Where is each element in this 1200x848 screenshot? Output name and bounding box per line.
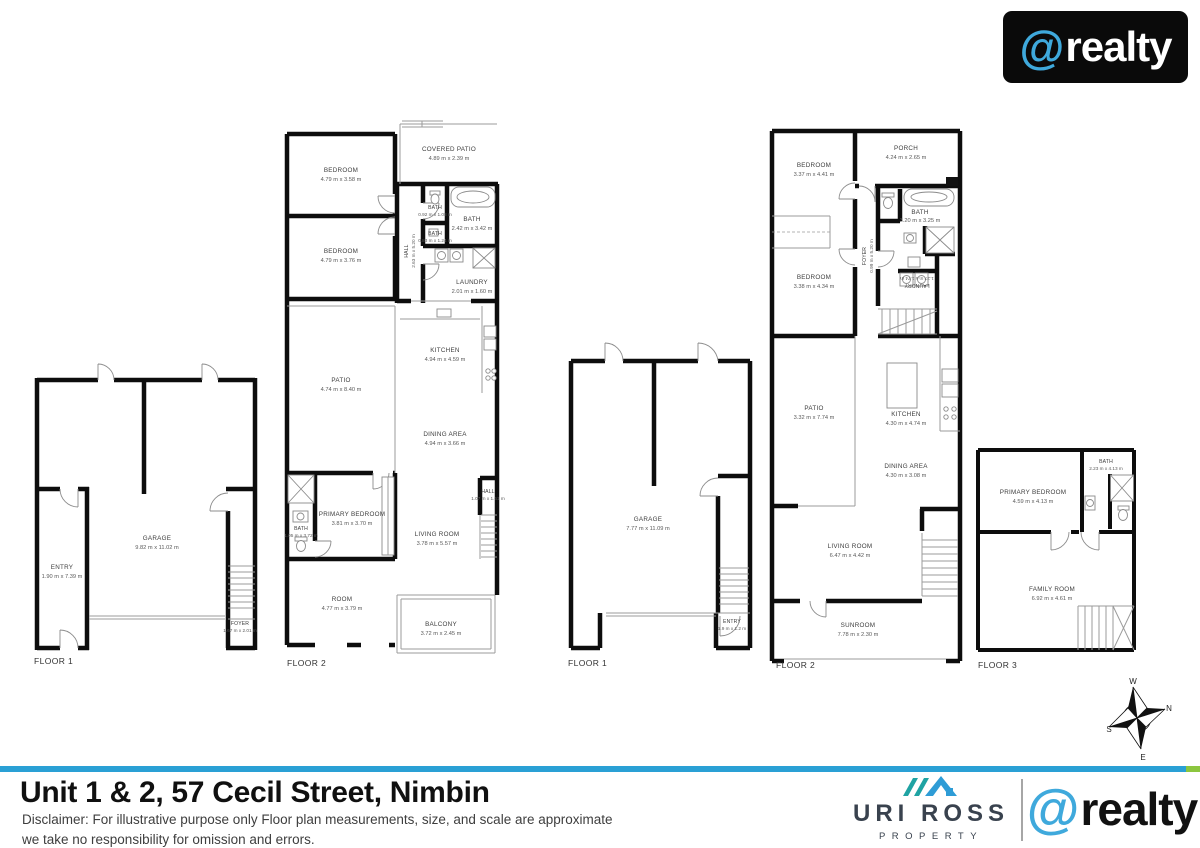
floor-label-u2f2: FLOOR 2	[776, 660, 815, 670]
room-name: DINING AREA	[884, 463, 928, 470]
room-name: FOYER	[862, 247, 868, 265]
room-dims: 7.78 m x 2.30 m	[838, 632, 879, 638]
room-label-bath-main: BATH 2.42 m x 3.42 m	[452, 216, 493, 232]
room-label-patio: PATIO 4.74 m x 8.40 m	[321, 377, 362, 393]
room-dims: 3.32 m x 7.74 m	[794, 415, 835, 421]
room-label-kitchen: KITCHEN 4.94 m x 4.59 m	[425, 347, 466, 363]
agency-name: URI ROSS	[848, 800, 1014, 828]
room-dims: 1.07 m x 1.61 m	[471, 496, 505, 501]
room-dims: 3.81 m x 3.70 m	[332, 521, 373, 527]
room-dims: 4.30 m x 4.74 m	[886, 421, 927, 427]
room-dims: 2.42 m x 3.42 m	[452, 226, 493, 232]
room-dims: 0.99 m x 5.20 m	[869, 239, 874, 273]
room-name: BATH	[1099, 459, 1113, 465]
compass-rose: W N E S	[1106, 678, 1170, 764]
room-name: LIVING ROOM	[828, 543, 873, 550]
room-name: FAMILY ROOM	[1029, 586, 1075, 593]
room-dims: 4.77 m x 3.79 m	[322, 606, 363, 612]
room-name: BEDROOM	[797, 162, 831, 169]
unit2-floor3-plan: BATH 2.23 m x 4.13 m PRIMARY BEDROOM 4.5…	[975, 444, 1140, 662]
room-dims: 3.78 m x 5.57 m	[417, 541, 458, 547]
room-name: FOYER	[231, 621, 249, 627]
room-dims: 6.92 m x 4.61 m	[1032, 596, 1073, 602]
room-label-living: LIVING ROOM 3.78 m x 5.57 m	[415, 531, 460, 547]
room-dims: 2.63 m x 5.20 m	[411, 234, 416, 268]
room-name: PATIO	[804, 405, 823, 412]
walls	[287, 134, 498, 645]
footer-accent-bar-tip	[1186, 766, 1200, 772]
room-name: LIVING ROOM	[415, 531, 460, 538]
room-name: ENTRY	[51, 564, 74, 571]
room-dims: 4.74 m x 8.40 m	[321, 387, 362, 393]
room-name: BATH	[294, 526, 308, 532]
room-name: KITCHEN	[430, 347, 460, 354]
room-dims: 4.94 m x 3.66 m	[425, 441, 466, 447]
unit1-floor2-plan: BEDROOM 4.79 m x 3.58 m BEDROOM 4.79 m x…	[285, 121, 500, 661]
room-label-sunroom: SUNROOM 7.78 m x 2.30 m	[838, 622, 879, 638]
realty-at-glyph: @	[1020, 20, 1065, 74]
room-label-kitchen: KITCHEN 4.30 m x 4.74 m	[886, 411, 927, 427]
room-label-hall: HALL 2.63 m x 5.20 m	[404, 234, 416, 268]
room-name: BATH	[911, 209, 929, 216]
room-label-bedroom1: BEDROOM 3.37 m x 4.41 m	[794, 162, 835, 178]
room-label-patio: PATIO 3.32 m x 7.74 m	[794, 405, 835, 421]
room-label-bath: BATH 3.20 m x 3.25 m	[900, 209, 941, 224]
agency-roof-icon	[901, 772, 961, 798]
room-name: KITCHEN	[891, 411, 921, 418]
room-label-garage: GARAGE 9.82 m x 11.02 m	[135, 535, 179, 551]
realty-wordmark: realty	[1065, 23, 1171, 71]
room-dims: 4.24 m x 2.65 m	[886, 155, 927, 161]
floor-label-u2f1: FLOOR 1	[568, 658, 607, 668]
room-dims: 4.30 m x 3.08 m	[886, 473, 927, 479]
fixtures	[288, 187, 496, 555]
room-label-porch: PORCH 4.24 m x 2.65 m	[886, 145, 927, 161]
compass-west: W	[1129, 677, 1137, 686]
floor-label-u1f2: FLOOR 2	[287, 658, 326, 668]
room-name: PATIO	[331, 377, 350, 384]
room-dims: 4.79 m x 3.58 m	[321, 177, 362, 183]
stairs	[1078, 606, 1134, 650]
room-dims: 4.89 m x 2.39 m	[429, 156, 470, 162]
room-label-hall-small: HALL 1.07 m x 1.61 m	[471, 489, 505, 501]
room-label-dining: DINING AREA 4.30 m x 3.08 m	[884, 463, 928, 479]
room-label-garage: GARAGE 7.77 m x 11.09 m	[626, 516, 670, 532]
door-swings	[1051, 532, 1099, 550]
realty-logo-header: @ realty	[1003, 11, 1188, 83]
room-label-covered-patio: COVERED PATIO 4.89 m x 2.39 m	[422, 146, 476, 162]
room-dims: 2.23 m x 4.13 m	[1089, 466, 1123, 471]
garage-door-line	[606, 613, 750, 616]
room-dims: 0.83 m x 1.24 m	[418, 238, 452, 243]
room-name: PRIMARY BEDROOM	[1000, 489, 1067, 496]
room-dims: 1.9 m x 1.2 m	[718, 626, 746, 631]
stairs	[719, 568, 749, 604]
unit2-floor2-plan: BEDROOM 3.37 m x 4.41 m PORCH 4.24 m x 2…	[770, 121, 965, 666]
thin-lines	[772, 216, 960, 659]
room-label-dining: DINING AREA 4.94 m x 3.66 m	[423, 431, 467, 447]
room-label-family-room: FAMILY ROOM 6.92 m x 4.61 m	[1029, 586, 1075, 602]
room-label-primary-bedroom: PRIMARY BEDROOM 3.81 m x 3.70 m	[319, 511, 386, 527]
compass-north: N	[1166, 704, 1172, 713]
room-label-bath: BATH 2.23 m x 4.13 m	[1089, 459, 1123, 471]
room-dims: 2.01 m x 1.60 m	[452, 289, 493, 295]
room-name: DINING AREA	[423, 431, 467, 438]
floor-label-u1f1: FLOOR 1	[34, 656, 73, 666]
room-dims: 6.47 m x 4.42 m	[830, 553, 871, 559]
room-name: SUNROOM	[841, 622, 876, 629]
stairs-upper	[878, 309, 937, 334]
floorplan-page: @ realty GARAGE 9.82 m x 11.02 m ENTRY	[0, 0, 1200, 848]
room-dims: 4.59 m x 4.13 m	[1013, 499, 1054, 505]
compass-south: S	[1106, 725, 1111, 734]
room-name: LAUNDRY	[904, 282, 930, 288]
walls	[571, 361, 750, 648]
agency-subtitle: PROPERTY	[848, 831, 1014, 842]
room-name: PORCH	[894, 145, 918, 152]
stairs	[228, 566, 255, 608]
room-name: HALL	[404, 244, 410, 257]
room-label-primary-bedroom: PRIMARY BEDROOM 4.59 m x 4.13 m	[1000, 489, 1067, 505]
agency-logo: URI ROSS PROPERTY	[848, 772, 1014, 842]
room-dims: 0.92 m x 1.08 m	[418, 212, 452, 217]
room-label-bedroom1: BEDROOM 4.79 m x 3.58 m	[321, 167, 362, 183]
room-label-foyer: FOYER 0.99 m x 5.20 m	[862, 239, 874, 273]
room-label-bedroom2: BEDROOM 3.38 m x 4.34 m	[794, 274, 835, 290]
page-title: Unit 1 & 2, 57 Cecil Street, Nimbin	[20, 776, 490, 810]
realty-at-glyph: @	[1027, 778, 1080, 840]
walls	[37, 378, 255, 650]
room-dims: 4.94 m x 4.59 m	[425, 357, 466, 363]
room-dims: 3.20 m x 3.25 m	[900, 218, 941, 224]
realty-logo-footer: @ realty	[1032, 776, 1192, 842]
room-name: BATH	[463, 216, 481, 223]
unit2-floor1-plan: GARAGE 7.77 m x 11.09 m ENTRY 1.9 m x 1.…	[568, 336, 764, 658]
room-name: PRIMARY BEDROOM	[319, 511, 386, 518]
room-name: BALCONY	[425, 621, 457, 628]
room-dims: 3.37 m x 4.41 m	[794, 172, 835, 178]
room-label-entry: ENTRY 1.9 m x 1.2 m	[718, 619, 746, 631]
room-dims: 4.79 m x 3.76 m	[321, 258, 362, 264]
room-name: COVERED PATIO	[422, 146, 476, 153]
room-label-bedroom2: BEDROOM 4.79 m x 3.76 m	[321, 248, 362, 264]
room-name: ROOM	[332, 596, 353, 603]
room-dims: 3.38 m x 4.34 m	[794, 284, 835, 290]
room-dims: 1.67 m x 2.01 m	[223, 628, 257, 633]
room-dims: 1.90 m x 7.39 m	[42, 574, 83, 580]
room-name: GARAGE	[143, 535, 171, 542]
room-name: LAUNDRY	[456, 279, 488, 286]
room-name: ENTRY	[723, 619, 741, 625]
unit1-floor1-plan: GARAGE 9.82 m x 11.02 m ENTRY 1.90 m x 7…	[32, 366, 260, 658]
stairs	[481, 515, 497, 557]
compass-star	[1109, 687, 1165, 749]
room-name: BATH	[428, 231, 442, 237]
room-label-entry: ENTRY 1.90 m x 7.39 m	[42, 564, 83, 580]
disclaimer-line2: we take no responsibility for omission a…	[22, 830, 613, 848]
compass-east: E	[1140, 753, 1145, 762]
realty-wordmark: realty	[1080, 782, 1197, 836]
disclaimer-text: Disclaimer: For illustrative purpose onl…	[22, 810, 613, 848]
room-label-laundry: LAUNDRY 2.01 m x 1.60 m	[452, 279, 493, 295]
footer-divider	[1021, 779, 1023, 841]
room-name: BATH	[428, 205, 442, 211]
room-name: HALL	[481, 489, 494, 495]
room-dims: 9.82 m x 11.02 m	[135, 545, 179, 551]
room-name: BEDROOM	[324, 167, 358, 174]
room-name: BEDROOM	[324, 248, 358, 255]
stairs-lower	[922, 540, 958, 589]
disclaimer-line1: Disclaimer: For illustrative purpose onl…	[22, 810, 613, 830]
room-label-balcony: BALCONY 3.72 m x 2.45 m	[421, 621, 462, 637]
room-dims: 3.72 m x 2.45 m	[421, 631, 462, 637]
floor-label-u2f3: FLOOR 3	[978, 660, 1017, 670]
room-dims: 1.05 m x 3.72 m	[284, 533, 318, 538]
room-label-room: ROOM 4.77 m x 3.79 m	[322, 596, 363, 612]
room-label-living: LIVING ROOM 6.47 m x 4.42 m	[828, 543, 873, 559]
room-dims: 7.77 m x 11.09 m	[626, 526, 670, 532]
room-dims: 1.27 m x 1.74 m	[900, 276, 934, 281]
room-name: BEDROOM	[797, 274, 831, 281]
room-name: GARAGE	[634, 516, 662, 523]
